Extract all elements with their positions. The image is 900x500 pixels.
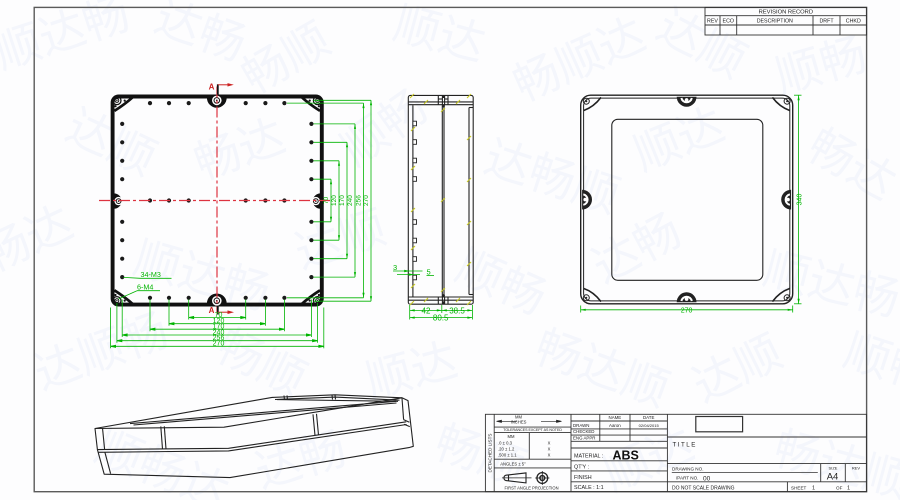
svg-text:TITLE: TITLE xyxy=(673,442,697,449)
svg-text:TOLERANCES EXCEPT AS NOTED: TOLERANCES EXCEPT AS NOTED xyxy=(503,428,562,432)
svg-text:X: X xyxy=(548,446,551,451)
svg-text:DRAWN: DRAWN xyxy=(573,423,589,428)
svg-text:256: 256 xyxy=(356,195,363,206)
svg-text:REVISION RECORD: REVISION RECORD xyxy=(759,10,813,16)
svg-text:170: 170 xyxy=(339,195,346,206)
svg-text:270: 270 xyxy=(363,195,370,206)
svg-text:/PART NO.: /PART NO. xyxy=(676,476,698,481)
svg-text:1: 1 xyxy=(847,486,850,492)
svg-text:70: 70 xyxy=(323,197,330,205)
svg-text:SHEET: SHEET xyxy=(791,485,807,490)
svg-text:INCHES: INCHES xyxy=(511,419,527,424)
svg-text:80.5: 80.5 xyxy=(433,314,449,323)
svg-text:Aaron: Aaron xyxy=(609,423,621,428)
svg-text:270: 270 xyxy=(681,307,693,314)
svg-text:340: 340 xyxy=(796,194,803,206)
svg-text:X: X xyxy=(548,440,551,445)
svg-text:CHECKED: CHECKED xyxy=(573,429,594,434)
svg-text:SCALE : 1:1: SCALE : 1:1 xyxy=(574,485,604,491)
svg-text:MATERIAL :: MATERIAL : xyxy=(574,454,603,460)
svg-text:DETACHED LISTS: DETACHED LISTS xyxy=(488,434,493,473)
svg-text:DESCRIPTION: DESCRIPTION xyxy=(757,18,793,24)
svg-text:A4: A4 xyxy=(827,472,839,483)
svg-text:38.5: 38.5 xyxy=(449,306,465,315)
svg-text:ECO: ECO xyxy=(723,18,734,24)
svg-text:ABS: ABS xyxy=(613,449,639,463)
svg-text:REV: REV xyxy=(852,465,861,470)
svg-text:6-M4: 6-M4 xyxy=(137,283,153,292)
svg-text:NAME: NAME xyxy=(609,415,622,420)
svg-text:.500 ± 1.1: .500 ± 1.1 xyxy=(498,452,517,457)
svg-text:X: X xyxy=(548,452,551,457)
svg-text:MM: MM xyxy=(508,434,515,439)
svg-text:.0 ± 0.3: .0 ± 0.3 xyxy=(498,440,513,445)
svg-text:270: 270 xyxy=(213,341,225,348)
svg-text:ENG APPR: ENG APPR xyxy=(573,436,595,441)
svg-text:02/04/2015: 02/04/2015 xyxy=(639,423,660,428)
svg-text:.20 ± 1.2: .20 ± 1.2 xyxy=(498,446,515,451)
svg-text:REV: REV xyxy=(707,18,718,24)
svg-text:DRFT: DRFT xyxy=(819,18,834,24)
svg-text:ANGLES ± 5°: ANGLES ± 5° xyxy=(500,462,526,467)
svg-text:00: 00 xyxy=(703,476,711,483)
svg-text:42: 42 xyxy=(422,306,431,315)
svg-text:34-M3: 34-M3 xyxy=(141,270,161,279)
svg-text:QT'Y :: QT'Y : xyxy=(574,465,589,471)
svg-text:OF: OF xyxy=(836,485,843,490)
svg-text:SIZE: SIZE xyxy=(829,465,838,470)
svg-text:1: 1 xyxy=(812,486,815,492)
svg-text:FINISH: FINISH xyxy=(574,475,592,481)
svg-text:240: 240 xyxy=(347,195,354,206)
svg-text:DRAWING NO.: DRAWING NO. xyxy=(672,467,703,472)
svg-text:CHKD: CHKD xyxy=(846,18,861,24)
svg-text:120: 120 xyxy=(331,195,338,206)
svg-text:FIRST ANGLE PROJECTION: FIRST ANGLE PROJECTION xyxy=(504,486,558,491)
svg-text:A: A xyxy=(209,83,215,92)
svg-text:DO NOT SCALE DRAWING: DO NOT SCALE DRAWING xyxy=(672,485,735,491)
svg-text:DATE: DATE xyxy=(643,415,654,420)
